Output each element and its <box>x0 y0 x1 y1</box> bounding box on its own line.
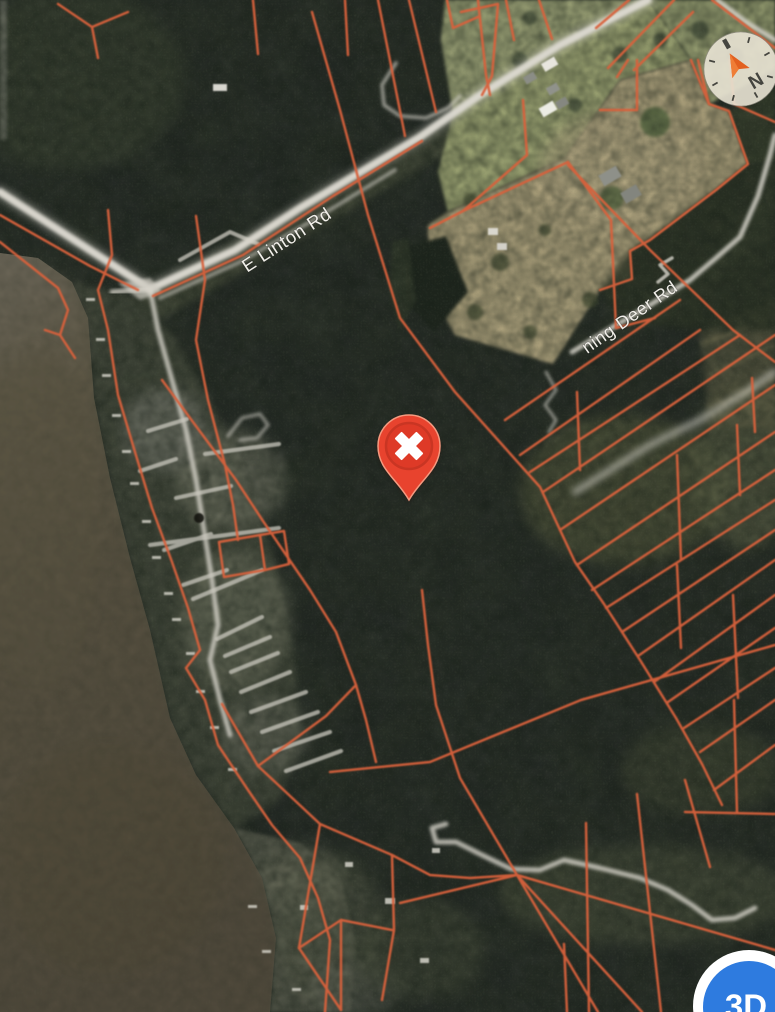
svg-text:3D: 3D <box>725 988 767 1012</box>
